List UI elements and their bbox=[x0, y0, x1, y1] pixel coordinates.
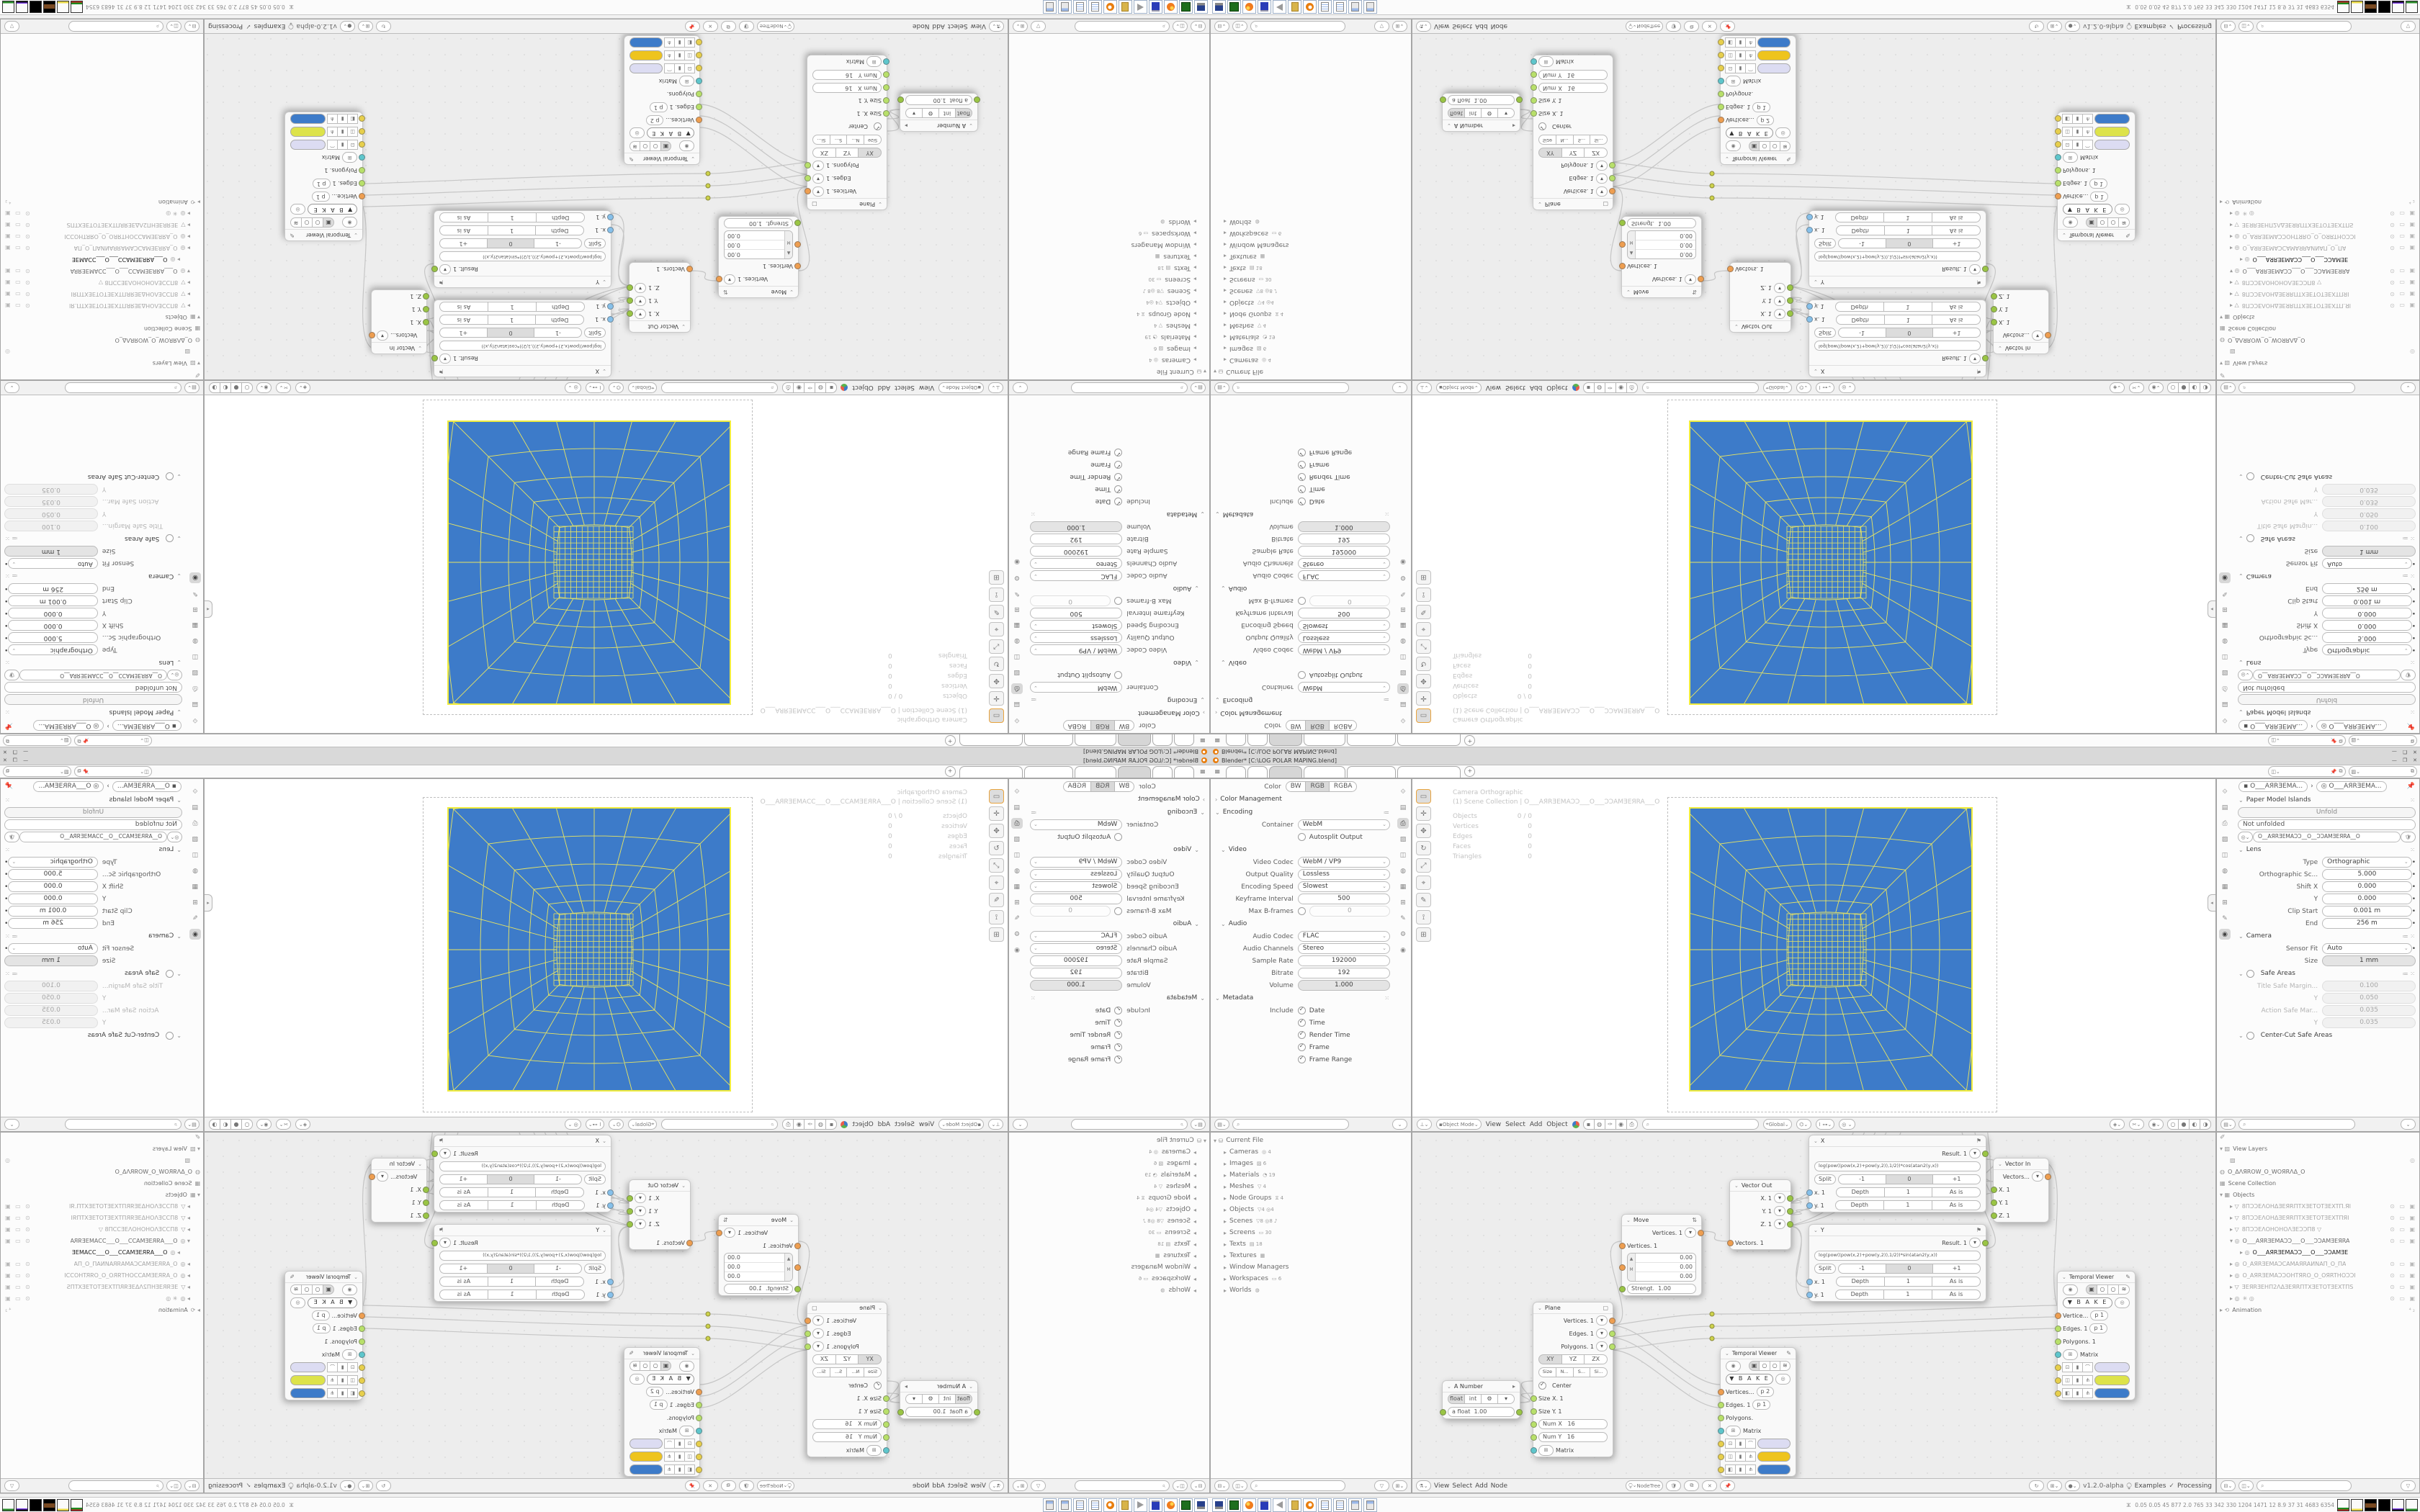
socket-vertices-in[interactable] bbox=[794, 1243, 801, 1249]
workspace-tab[interactable] bbox=[1152, 734, 1173, 746]
sample-rate-field[interactable]: 192000 bbox=[1298, 955, 1390, 966]
menu-hamburger-icon[interactable]: ≡ bbox=[1200, 768, 1206, 776]
title-safe-y-field[interactable]: 0.050 bbox=[4, 508, 98, 519]
socket-number-out[interactable] bbox=[974, 96, 980, 103]
socket-z-out[interactable] bbox=[627, 1221, 633, 1228]
panel-encoding[interactable]: ⌄Encoding≔ bbox=[1026, 693, 1209, 706]
outliner-row[interactable]: ▨ ◎ bbox=[1, 346, 203, 358]
safe-areas-checkbox[interactable] bbox=[2246, 970, 2254, 978]
tab-object-icon[interactable]: ▦ bbox=[189, 620, 201, 631]
encoding-speed-dropdown[interactable]: Slowest bbox=[1030, 881, 1122, 892]
tool-measure-icon[interactable]: ⟟ bbox=[989, 910, 1004, 924]
unlink-icon[interactable]: ✕ bbox=[703, 1480, 718, 1491]
draft-toggle-icon[interactable]: ●⌄ bbox=[340, 1480, 355, 1491]
animate-dot-icon[interactable]: • bbox=[2412, 647, 2416, 654]
visibility-toggle-icons[interactable]: ⊙ ▭ ▣ bbox=[2390, 280, 2416, 287]
outliner-row[interactable]: ▸ ▽ 8ПƆƆEΛOHOHOΛƎEƆƆП8 ▽ ⊙ ▭ ▣ bbox=[2217, 277, 2419, 289]
outliner-search[interactable]: ⌕ bbox=[2257, 1480, 2352, 1491]
taskbar-blender-icon[interactable] bbox=[1103, 1, 1117, 14]
shift-x-field[interactable]: 0.000 bbox=[8, 881, 98, 892]
socket-result-out[interactable] bbox=[431, 1151, 438, 1157]
editor-type-button[interactable]: ⚗⌄ bbox=[989, 1480, 1004, 1491]
tool-add-cube-icon[interactable]: ⊞ bbox=[989, 570, 1004, 585]
show-overlays-icon[interactable]: ✂⌄ bbox=[276, 382, 291, 393]
socket-num-y[interactable] bbox=[1531, 71, 1537, 78]
socket-y-in[interactable] bbox=[1806, 1292, 1813, 1298]
add-workspace-button[interactable]: + bbox=[1464, 766, 1475, 777]
sidebar-tab[interactable]: ◂ bbox=[2208, 600, 2215, 618]
socket-num-y[interactable] bbox=[883, 71, 889, 78]
node-vector-in[interactable]: ⌄Vector In Vectors...▾ X. 1 Y. 1 Z. 1 bbox=[1993, 1158, 2049, 1223]
sample-rate-field[interactable]: 192000 bbox=[1030, 546, 1122, 557]
max-bframes-checkbox[interactable] bbox=[1298, 907, 1306, 915]
row-label[interactable]: O___AЯRƎEMAƆƆ___O___ƆƆAMƎEЯRA bbox=[2243, 1238, 2350, 1244]
tab-viewlayer-icon[interactable]: ▨ bbox=[2219, 667, 2231, 678]
tab-modifiers-icon[interactable]: ⊞ bbox=[189, 604, 201, 615]
shield-icon[interactable]: 🛡 bbox=[2401, 832, 2416, 842]
render-time-checkbox[interactable] bbox=[1298, 473, 1306, 481]
socket-polygons-out[interactable] bbox=[1609, 162, 1615, 168]
tab-data-icon[interactable]: ◉ bbox=[1011, 945, 1023, 955]
outliner-row[interactable]: ▸ ▽ ƎEЯRƎEHП2ΛΔƎEЯRПTXƎETOTƎEXTПЅ ⊙ ▭ ▣ bbox=[1, 220, 203, 231]
taskbar-floppy-icon[interactable] bbox=[1149, 1, 1162, 14]
file-category-row[interactable]: ▸ Scenes ▽8 ◎8 ♪ bbox=[1211, 1215, 1411, 1227]
visibility-toggle-icons[interactable]: ⊙ ▭ ▣ bbox=[4, 269, 30, 275]
row-label[interactable]: O_AЯRƎEMAƆƆOHTЯRO_O_OЯRTHOƆƆI bbox=[64, 234, 177, 240]
socket-color[interactable] bbox=[1718, 1454, 1724, 1460]
panel-metadata[interactable]: ⌄Metadata⁙ bbox=[1211, 991, 1394, 1004]
row-type-icon[interactable]: ▸ ▽ bbox=[181, 1203, 190, 1210]
copy-icon[interactable]: ⧉ bbox=[2339, 768, 2343, 775]
menu-hamburger-icon[interactable]: ≡ bbox=[1200, 736, 1206, 744]
row-type-icon[interactable]: ▸ ◎ bbox=[2230, 1261, 2240, 1267]
loop-icon[interactable]: ◎ bbox=[1775, 128, 1791, 139]
outliner-row[interactable]: ▸ ▽ 8ПƆƆEΛOHΔƎEЯRПTXƎETOTƎEXTПЯI ⊙ ▭ ▣ bbox=[2217, 289, 2419, 300]
row-label[interactable]: 8ПƆƆEΛOHΔƎEЯRПTXƎETOTƎEXTПЯI bbox=[71, 1215, 179, 1221]
socket-size-y[interactable] bbox=[1531, 1408, 1537, 1415]
row-type-icon[interactable]: ▸ ▽ bbox=[2230, 280, 2239, 287]
file-category-row[interactable]: ▸ Scenes ▽8 ◎8 ♪ bbox=[1009, 285, 1209, 297]
properties-search[interactable]: ⌕ bbox=[1232, 1119, 1349, 1130]
visibility-toggle-icons[interactable]: ⊙ ▭ ▣ bbox=[2390, 1272, 2416, 1279]
taskbar-notepad-icon[interactable] bbox=[1073, 1498, 1087, 1512]
socket-y-out[interactable] bbox=[627, 1208, 633, 1215]
transform-orientation-dropdown[interactable]: ⌖ Global ⌄ bbox=[628, 1119, 657, 1130]
vertex-color-swatch[interactable] bbox=[2094, 140, 2130, 150]
loop-icon[interactable]: ◎ bbox=[629, 128, 645, 139]
pin-icon[interactable]: 📌 bbox=[2407, 722, 2415, 729]
display-mode-dropdown[interactable]: ⊟⌄ bbox=[184, 1480, 200, 1491]
outliner-row[interactable]: ▾ ◎ O___AЯRƎEMAƆƆ___O___ƆƆAMƎEЯRA ⊙ ▭ ▣ bbox=[1, 266, 203, 277]
copy-icon[interactable]: ⧉ bbox=[6, 768, 9, 775]
snap-magnet-icon[interactable]: ⌇ ⊶⌄ bbox=[1816, 382, 1835, 393]
unfold-button[interactable]: Unfold bbox=[4, 694, 182, 705]
nodetree-selector[interactable]: ⧬⌄ NodeTree bbox=[757, 21, 794, 32]
workspace-tab[interactable] bbox=[1226, 766, 1246, 778]
socket-color[interactable] bbox=[1718, 65, 1724, 71]
grid-toggle-icon[interactable]: ⊞⌄ bbox=[358, 1480, 373, 1491]
menu-select[interactable]: Select bbox=[895, 1121, 915, 1128]
time-checkbox[interactable] bbox=[1114, 1019, 1122, 1027]
max-bframes-field[interactable]: 0 bbox=[1309, 595, 1390, 606]
title-safe-x-field[interactable]: 0.100 bbox=[2322, 981, 2416, 991]
camera-datablock-field[interactable]: O__AЯRƎEMAƆƆ__O__ƆƆAMƎEЯRA__O bbox=[2253, 832, 2401, 842]
outliner-row[interactable]: ▾ ▦ Objects bbox=[1, 1189, 203, 1200]
socket-polygons-out[interactable] bbox=[1609, 1344, 1615, 1350]
socket-y-out[interactable] bbox=[1787, 297, 1793, 304]
row-label[interactable]: O___AЯRƎEMAƆƆ___O___ƆƆAMƎE bbox=[2253, 257, 2349, 264]
socket-x-in[interactable] bbox=[1806, 316, 1813, 323]
viewlayer-name-field[interactable] bbox=[12, 768, 58, 775]
sensor-size-field[interactable]: 1 mm bbox=[4, 955, 98, 966]
tab-world-icon[interactable]: ◍ bbox=[1011, 636, 1023, 647]
taskbar-firefox-icon[interactable] bbox=[1242, 1, 1256, 14]
disclosure-icon[interactable]: ▸ bbox=[1224, 357, 1227, 364]
subpanel-video[interactable]: ⌄Video bbox=[1211, 656, 1394, 669]
socket-color[interactable] bbox=[696, 52, 702, 58]
tab-output-icon[interactable]: ⎙ bbox=[189, 818, 201, 829]
visibility-toggle-icons[interactable]: ⊙ ▭ ▣ bbox=[2390, 292, 2416, 298]
filter-funnel-icon[interactable]: ▽ bbox=[4, 21, 19, 32]
tool-transform-icon[interactable]: ⌖ bbox=[1416, 876, 1431, 890]
autosplit-checkbox[interactable] bbox=[1114, 833, 1122, 841]
taskbar-speaker-icon[interactable] bbox=[1273, 1, 1286, 14]
vector-value-box[interactable]: ▲M 0.000.000.00 bbox=[1627, 1253, 1696, 1282]
split-button[interactable]: Split bbox=[1814, 1174, 1836, 1184]
visibility-toggle-icons[interactable]: ⊙ ▭ ▣ bbox=[4, 1284, 30, 1290]
shift-y-field[interactable]: 0.000 bbox=[8, 608, 98, 618]
socket-result-out[interactable] bbox=[1982, 266, 1989, 272]
show-overlays-icon[interactable]: ✂⌄ bbox=[276, 1119, 291, 1130]
restore-button[interactable]: ❐ bbox=[2403, 749, 2407, 755]
editor-type-button[interactable]: ⚗⌄ bbox=[1416, 21, 1431, 32]
tab-world-icon[interactable]: ◍ bbox=[1397, 865, 1409, 876]
tab-world-icon[interactable]: ◍ bbox=[2219, 865, 2231, 876]
shading-solid-icon[interactable]: ● bbox=[2178, 1119, 2190, 1130]
vector-value-box[interactable]: ▲M 0.000.000.00 bbox=[724, 230, 793, 259]
file-category-row[interactable]: ▸ Meshes ▽ 4 bbox=[1211, 320, 1411, 331]
xray-toggle-icon[interactable]: ◉⌄ bbox=[256, 1119, 272, 1130]
file-category-row[interactable]: ▸ Textures ▦ bbox=[1211, 251, 1411, 262]
socket-polygons-out[interactable] bbox=[805, 162, 811, 168]
socket-vectors-in[interactable] bbox=[1727, 266, 1734, 272]
socket-z-in[interactable] bbox=[423, 1212, 429, 1219]
row-type-icon[interactable]: ▸ ◎ bbox=[180, 234, 190, 240]
socket-result-out[interactable] bbox=[431, 355, 438, 361]
tab-viewlayer-icon[interactable]: ▨ bbox=[1011, 667, 1023, 678]
socket-polygons-in[interactable] bbox=[359, 1338, 365, 1345]
node-temporal-viewer-1[interactable]: ⌄Temporal Viewer✎ ◉▣○○≋ ▼ B A K E◎ Verti… bbox=[1720, 35, 1796, 165]
vertex-color-swatch[interactable] bbox=[1757, 63, 1791, 73]
outliner-row[interactable]: ▨ ◎ bbox=[1, 1154, 203, 1166]
unlink-icon[interactable]: ✕ bbox=[1702, 21, 1717, 32]
disclosure-icon[interactable]: ▸ bbox=[1193, 1184, 1196, 1190]
formula-field[interactable]: log(pow((pow(x,2)+pow(y,2)),1/2))*cos(at… bbox=[439, 341, 606, 351]
grid-toggle-icon[interactable]: ⊞⌄ bbox=[2047, 1480, 2062, 1491]
tool-transform-icon[interactable]: ⌖ bbox=[989, 622, 1004, 636]
tab-tool-icon[interactable]: ⟐ bbox=[1011, 715, 1023, 726]
filter-funnel-icon[interactable]: ▽ bbox=[1374, 1480, 1389, 1491]
volume-slider[interactable]: 1.000 bbox=[1030, 980, 1122, 991]
socket-color[interactable] bbox=[359, 141, 365, 148]
taskbar-blender-icon[interactable] bbox=[1303, 1498, 1317, 1512]
copy-icon[interactable]: ⧉ bbox=[2411, 768, 2414, 775]
row-label[interactable]: O_AЯRƎEMAƆCAMAЯRAИNAП_O_ПA bbox=[2243, 1261, 2347, 1267]
viewlayer-name-field[interactable] bbox=[12, 737, 58, 744]
filter-mode-dropdown[interactable]: ◫⌄ bbox=[166, 21, 181, 32]
tab-physics-icon[interactable]: ✎ bbox=[1011, 588, 1023, 599]
row-label[interactable]: O___AЯRƎEMAƆƆ___O___ƆƆAMƎE bbox=[72, 257, 168, 264]
ortho-scale-field[interactable]: 5.000 bbox=[8, 869, 98, 880]
row-type-icon[interactable]: ▸ ⟲ bbox=[2220, 199, 2229, 206]
unfold-button[interactable]: Unfold bbox=[2238, 807, 2416, 818]
tab-modifiers-icon[interactable]: ⊞ bbox=[1397, 897, 1409, 908]
row-type-icon[interactable]: ▸ ◎ bbox=[2230, 234, 2240, 240]
socket-x-in[interactable] bbox=[1806, 227, 1813, 233]
panel-color-management[interactable]: ›Color Management bbox=[1211, 706, 1394, 719]
tab-output-icon[interactable]: ⎙ bbox=[1397, 683, 1409, 694]
filter-funnel-icon[interactable]: ▽ bbox=[4, 1480, 19, 1491]
disclosure-icon[interactable]: ▸ bbox=[1193, 1230, 1196, 1236]
bitrate-field[interactable]: 192 bbox=[1298, 968, 1390, 978]
row-label[interactable]: ƎEЯRƎEHП2ΛΔƎEЯRПTXƎETOTƎEXTПЅ bbox=[67, 1284, 179, 1290]
draft-toggle-icon[interactable]: ●⌄ bbox=[340, 21, 355, 32]
socket-vertices-in[interactable] bbox=[359, 1313, 365, 1319]
shift-y-field[interactable]: 0.000 bbox=[2322, 894, 2412, 904]
taskbar-floppy-icon[interactable] bbox=[1258, 1, 1271, 14]
taskbar-firefox-icon[interactable] bbox=[1164, 1, 1178, 14]
row-label[interactable]: View Layers bbox=[153, 361, 187, 367]
socket-strength[interactable] bbox=[1619, 220, 1626, 226]
row-type-icon[interactable]: ◍ bbox=[2220, 1169, 2225, 1175]
animate-dot-icon[interactable]: • bbox=[2412, 622, 2416, 629]
disclosure-icon[interactable]: ▸ bbox=[1224, 1218, 1227, 1225]
color-rgba-button[interactable]: RGBA bbox=[1329, 781, 1358, 792]
panel-lens[interactable]: ⌄Lens⁙ bbox=[1, 656, 186, 669]
menu-view[interactable]: View bbox=[971, 1482, 986, 1490]
show-gizmo-icon[interactable]: ◈⌄ bbox=[2110, 1119, 2125, 1130]
pin-icon[interactable]: 📌 bbox=[685, 1480, 700, 1491]
row-type-icon[interactable]: ▾ ▦ bbox=[2220, 315, 2230, 321]
row-type-icon[interactable]: ▸ ▽ bbox=[181, 1284, 190, 1290]
outliner-row[interactable]: ▸ ◎ ✳ ◎ ⊙ ▭ ▣ bbox=[2217, 1292, 2419, 1304]
tab-object-icon[interactable]: ▦ bbox=[2219, 881, 2231, 892]
menu-node[interactable]: Node bbox=[913, 23, 930, 30]
file-category-row[interactable]: ▸ Worlds ◍ bbox=[1211, 1284, 1411, 1296]
animate-dot-icon[interactable]: • bbox=[2412, 883, 2416, 891]
animate-dot-icon[interactable]: • bbox=[2412, 908, 2416, 915]
tab-modifiers-icon[interactable]: ⊞ bbox=[2219, 897, 2231, 908]
color-rgb-button[interactable]: RGB bbox=[1305, 720, 1329, 731]
edge-color-swatch[interactable] bbox=[1757, 1452, 1791, 1462]
row-label[interactable]: 8ПƆƆEΛOHΔƎEЯRПTXƎETOTƎEXTП.ЯI bbox=[69, 303, 178, 310]
file-category-row[interactable]: ▸ Cameras ◎ 4 bbox=[1009, 1146, 1209, 1158]
tool-measure-icon[interactable]: ⟟ bbox=[1416, 910, 1431, 924]
socket-x-in[interactable] bbox=[1806, 1189, 1813, 1196]
breadcrumb-data[interactable]: ◎O___AЯRƎEMA... bbox=[33, 721, 104, 732]
row-type-icon[interactable]: ◍ bbox=[195, 338, 200, 344]
row-type-icon[interactable]: ▸ ▽ bbox=[2230, 222, 2239, 229]
outliner-row[interactable]: ▸ ▽ ƎEЯRƎEHП2ΛΔƎEЯRПTXƎETOTƎEXTПЅ ⊙ ▭ ▣ bbox=[2217, 1281, 2419, 1292]
edge-color-swatch[interactable] bbox=[629, 1452, 663, 1462]
editor-type-button[interactable]: ▤⌄ bbox=[1214, 1119, 1229, 1130]
copy-icon[interactable]: ⧉ bbox=[6, 737, 9, 744]
node-plane[interactable]: ⌄Plane▢ Vertices. 1▾ Edges. 1▾ Polygons.… bbox=[807, 55, 887, 210]
scene-selector[interactable]: ◫⌄📌⧉ bbox=[74, 766, 151, 777]
viewport-3d[interactable]: ▭ ✛ ✥ ↻ ⤢ ⌖ ✎ ⟟ ⊞ Camera Orthographic (1… bbox=[204, 380, 1008, 734]
file-category-row[interactable]: ▸ Screens ▭ 30 bbox=[1211, 274, 1411, 285]
tab-object-icon[interactable]: ▦ bbox=[2219, 620, 2231, 631]
tab-tool-icon[interactable]: ⟐ bbox=[189, 786, 201, 797]
outliner-search[interactable]: ⌕ bbox=[68, 21, 163, 32]
tab-constraints-icon[interactable]: ⚙ bbox=[1397, 929, 1409, 940]
visibility-toggle-icons[interactable]: ⊙ ▭ ▣ bbox=[2390, 222, 2416, 229]
socket-number-out[interactable] bbox=[1440, 1409, 1446, 1416]
camera-icon[interactable]: ◎⌄ bbox=[167, 832, 182, 842]
proportional-edit-icon[interactable]: ◎ ⌄ bbox=[565, 382, 581, 393]
editor-type-button[interactable]: ▤⌄ bbox=[1191, 382, 1206, 393]
xray-toggle-icon[interactable]: ◉⌄ bbox=[2148, 1119, 2164, 1130]
tab-output-icon[interactable]: ⎙ bbox=[2219, 683, 2231, 694]
disclosure-icon[interactable]: ▸ bbox=[1224, 265, 1227, 271]
autosplit-checkbox[interactable] bbox=[1298, 671, 1306, 679]
panel-color-management[interactable]: ›Color Management bbox=[1211, 793, 1394, 806]
socket-polygons-in[interactable] bbox=[359, 167, 365, 174]
row-label[interactable]: O_AЯRƎEMAƆCAMAЯRAИNAП_O_ПA bbox=[2243, 246, 2347, 252]
visibility-toggle-icons[interactable]: ⊙ ▭ ▣ bbox=[4, 246, 30, 252]
presets-icon[interactable]: ≔ bbox=[1031, 809, 1036, 816]
tool-select-icon[interactable]: ▭ bbox=[1416, 708, 1431, 723]
examples-menu[interactable]: Examples bbox=[254, 1482, 286, 1490]
display-mode-dropdown[interactable]: ⊟⌄ bbox=[184, 21, 200, 32]
new-id-dropdown[interactable]: ⊞⌄ bbox=[1392, 1480, 1407, 1491]
taskbar-calculator-icon[interactable] bbox=[1058, 1, 1072, 14]
split-button[interactable]: Split bbox=[584, 238, 606, 248]
tab-scene-icon[interactable]: ◫ bbox=[1011, 652, 1023, 662]
socket-y-in[interactable] bbox=[1806, 303, 1813, 310]
pin-icon[interactable]: 📌 bbox=[1720, 21, 1735, 32]
log-polar-plane[interactable] bbox=[447, 807, 731, 1092]
taskbar-blender-icon[interactable] bbox=[1303, 1, 1317, 14]
node-formula-y[interactable]: ⌄Y⚑ Result. 1▾ log(pow((pow(x,2)+pow(y,2… bbox=[1809, 210, 1986, 288]
disclosure-icon[interactable]: ▸ bbox=[1224, 1264, 1227, 1271]
menu-node[interactable]: Node bbox=[913, 1482, 930, 1490]
frame-range-checkbox[interactable] bbox=[1114, 449, 1122, 456]
subpanel-video[interactable]: ⌄Video bbox=[1211, 843, 1394, 856]
eye-icon[interactable]: ◉ bbox=[1726, 141, 1741, 152]
socket-matrix[interactable] bbox=[1531, 58, 1537, 65]
socket-size-y[interactable] bbox=[1531, 97, 1537, 104]
action-safe-x-field[interactable]: 0.035 bbox=[2322, 1005, 2416, 1016]
outliner-row[interactable]: ▸ ◎ O___AЯRƎEMAƆƆ___O___ƆƆAMƎE bbox=[2217, 1246, 2419, 1258]
disclosure-icon[interactable]: ▸ bbox=[1193, 1241, 1196, 1248]
panel-center-cut[interactable]: ⌄Center-Cut Safe Areas bbox=[2234, 1029, 2419, 1042]
outliner-row[interactable]: ▸ ▽ ƎEЯRƎEHП2ΛΔƎEЯRПTXƎETOTƎEXTПЅ ⊙ ▭ ▣ bbox=[1, 1281, 203, 1292]
workspace-tab[interactable] bbox=[959, 734, 1023, 746]
socket-vertices-in[interactable] bbox=[696, 117, 702, 123]
file-category-row[interactable]: ▸ Images ▨ 6 bbox=[1211, 343, 1411, 354]
sensor-size-field[interactable]: 1 mm bbox=[4, 546, 98, 557]
socket-color[interactable] bbox=[696, 1441, 702, 1447]
face-color-swatch[interactable] bbox=[290, 114, 326, 124]
tool-rotate-icon[interactable]: ↻ bbox=[989, 841, 1004, 855]
safe-areas-checkbox[interactable] bbox=[2246, 535, 2254, 543]
volume-slider[interactable]: 1.000 bbox=[1298, 980, 1390, 991]
panel-camera[interactable]: ⌄Camera≔ ⁙ bbox=[1, 930, 186, 942]
tab-object-icon[interactable]: ▦ bbox=[189, 881, 201, 892]
socket-y-out[interactable] bbox=[1787, 1208, 1793, 1215]
socket-vertices-in[interactable] bbox=[696, 1389, 702, 1395]
node-temporal-viewer-1[interactable]: ⌄Temporal Viewer✎ ◉▣○○≋ ▼ B A K E◎ Verti… bbox=[1720, 1347, 1796, 1477]
disclosure-icon[interactable]: ▸ bbox=[1193, 323, 1196, 329]
vector-value-box[interactable]: ▲M 0.000.000.00 bbox=[724, 1253, 793, 1282]
restore-button[interactable]: ❐ bbox=[13, 749, 17, 755]
taskbar-calculator-icon[interactable] bbox=[1363, 1, 1377, 14]
container-dropdown[interactable]: WebM bbox=[1298, 682, 1390, 693]
file-category-row[interactable]: ▸ Meshes ▽ 4 bbox=[1009, 320, 1209, 331]
action-safe-x-field[interactable]: 0.035 bbox=[4, 1005, 98, 1016]
visibility-toggle-icons[interactable]: ⊙ ▭ ▣ bbox=[4, 1261, 30, 1267]
socket-polygons-in[interactable] bbox=[2055, 1338, 2061, 1345]
pin-icon[interactable]: 📌 bbox=[2407, 783, 2415, 790]
snap-magnet-icon[interactable]: ⌇ ⊶⌄ bbox=[586, 1119, 605, 1130]
volume-slider[interactable]: 1.000 bbox=[1298, 521, 1390, 532]
socket-size-y[interactable] bbox=[883, 97, 889, 104]
row-type-icon[interactable]: ▨ bbox=[184, 1157, 190, 1164]
row-type-icon[interactable]: ▸ ▽ bbox=[2230, 1203, 2239, 1210]
node-vector-in[interactable]: ⌄Vector In Vectors...▾ X. 1 Y. 1 Z. 1 bbox=[371, 1158, 427, 1223]
action-safe-y-field[interactable]: 0.035 bbox=[2322, 484, 2416, 495]
socket-vectors-in[interactable] bbox=[686, 1240, 693, 1246]
editor-type-button[interactable]: ▤⌄ bbox=[2220, 382, 2236, 393]
outliner-row[interactable]: ▾ ▦ Objects bbox=[1, 312, 203, 323]
socket-vector-in[interactable] bbox=[1619, 241, 1626, 248]
processing-toggle[interactable]: Processing bbox=[2177, 23, 2212, 30]
row-type-icon[interactable]: ▨ bbox=[2230, 1157, 2236, 1164]
disclosure-icon[interactable]: ▸ bbox=[1193, 311, 1196, 318]
tab-object-icon[interactable]: ▦ bbox=[1397, 620, 1409, 631]
camera-datablock-field[interactable]: O__AЯRƎEMAƆƆ__O__ƆƆAMƎEЯRA__O bbox=[19, 670, 167, 680]
viewlayer-selector[interactable]: ▨⌄⧉ bbox=[3, 766, 71, 777]
shading-material-icon[interactable]: ◐ bbox=[220, 382, 231, 393]
tool-move-icon[interactable]: ✥ bbox=[989, 824, 1004, 838]
outliner-row[interactable]: ▸ ▽ 8ПƆƆEΛOHOHOΛƎEƆƆП8 ▽ ⊙ ▭ ▣ bbox=[2217, 1223, 2419, 1235]
menu-object[interactable]: Object bbox=[852, 1121, 873, 1128]
nodetree-selector[interactable]: ⧬⌄ NodeTree bbox=[757, 1480, 794, 1491]
row-label[interactable]: View Layers bbox=[153, 1146, 187, 1152]
visibility-toggle-icons[interactable]: ⁴₂ bbox=[4, 1307, 11, 1313]
pivot-dropdown[interactable]: ⌬⌄ bbox=[1796, 1119, 1811, 1130]
tool-transform-icon[interactable]: ⌖ bbox=[1416, 622, 1431, 636]
display-mode-dropdown[interactable]: ⊟⌄ bbox=[1214, 21, 1229, 32]
menu-add[interactable]: Add bbox=[878, 1121, 890, 1128]
face-color-swatch[interactable] bbox=[1757, 1464, 1791, 1475]
visibility-toggle-icons[interactable]: ⊙ ▭ ▣ bbox=[2390, 211, 2416, 217]
camera-datablock-field[interactable]: O__AЯRƎEMAƆƆ__O__ƆƆAMƎEЯRA__O bbox=[2253, 670, 2401, 680]
tab-constraints-icon[interactable]: ⚙ bbox=[1397, 572, 1409, 583]
workspace-tab[interactable] bbox=[1304, 766, 1345, 778]
animate-dot-icon[interactable]: • bbox=[2412, 945, 2416, 953]
options-dropdown-icon[interactable]: ⌄ bbox=[4, 1119, 19, 1130]
visibility-toggle-icons[interactable]: ⊙ ▭ ▣ bbox=[4, 211, 30, 217]
socket-matrix-in[interactable] bbox=[359, 1351, 365, 1358]
edge-color-swatch[interactable] bbox=[290, 127, 326, 137]
edge-color-swatch[interactable] bbox=[290, 1375, 326, 1385]
filter-funnel-icon[interactable]: ▽ bbox=[1031, 21, 1046, 32]
file-category-row[interactable]: ▸ Screens ▭ 30 bbox=[1009, 1227, 1209, 1238]
loop-icon[interactable]: ◎ bbox=[290, 1297, 305, 1308]
sidebar-tab[interactable]: ◂ bbox=[205, 894, 212, 912]
